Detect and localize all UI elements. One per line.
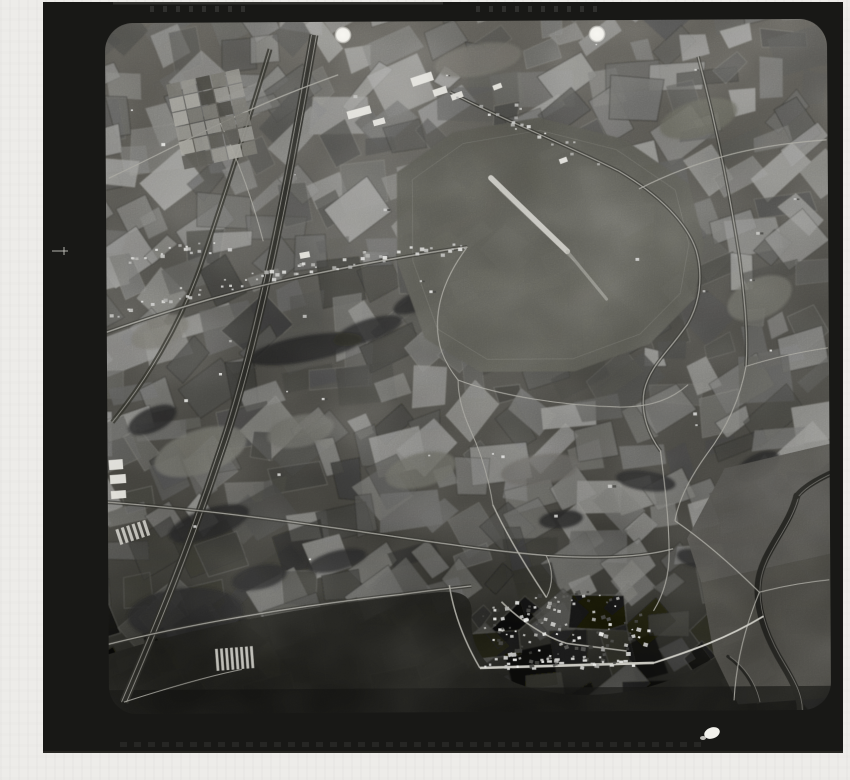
film-edge-mark xyxy=(528,6,532,12)
film-edge-tick xyxy=(316,742,323,747)
film-edge-tick xyxy=(694,742,701,747)
frame-bottom-edge xyxy=(43,751,843,753)
film-edge-tick xyxy=(358,742,365,747)
film-edge-tick xyxy=(428,742,435,747)
photo-clip-group xyxy=(52,0,850,731)
film-edge-tick xyxy=(288,742,295,747)
film-edge-tick xyxy=(274,742,281,747)
film-edge-mark xyxy=(515,6,519,12)
frame-top-edge-highlight xyxy=(113,2,443,5)
film-edge-mark xyxy=(241,6,245,12)
film-edge-mark xyxy=(502,6,506,12)
film-edge-tick xyxy=(218,742,225,747)
film-edge-tick xyxy=(666,742,673,747)
film-edge-tick xyxy=(568,742,575,747)
film-edge-tick xyxy=(512,742,519,747)
film-edge-tick xyxy=(596,742,603,747)
film-edge-tick xyxy=(120,742,127,747)
film-edge-tick xyxy=(526,742,533,747)
film-edge-tick xyxy=(456,742,463,747)
film-edge-mark xyxy=(215,6,219,12)
film-edge-tick xyxy=(638,742,645,747)
film-edge-tick xyxy=(232,742,239,747)
scan-backing-sheet xyxy=(0,0,850,780)
film-edge-mark xyxy=(541,6,545,12)
film-edge-tick xyxy=(680,742,687,747)
film-edge-mark xyxy=(228,6,232,12)
film-edge-mark xyxy=(202,6,206,12)
film-edge-tick xyxy=(302,742,309,747)
film-edge-tick xyxy=(470,742,477,747)
film-edge-mark xyxy=(554,6,558,12)
film-edge-tick xyxy=(442,742,449,747)
film-edge-tick xyxy=(148,742,155,747)
film-edge-tick xyxy=(540,742,547,747)
film-edge-mark xyxy=(476,6,480,12)
film-edge-tick xyxy=(582,742,589,747)
film-edge-mark xyxy=(163,6,167,12)
film-edge-mark xyxy=(593,6,597,12)
film-edge-tick xyxy=(610,742,617,747)
film-edge-mark xyxy=(189,6,193,12)
film-edge-mark xyxy=(567,6,571,12)
film-edge-tick xyxy=(484,742,491,747)
film-edge-tick xyxy=(414,742,421,747)
film-edge-tick xyxy=(176,742,183,747)
aerial-photograph xyxy=(0,0,850,780)
film-grain xyxy=(105,19,831,714)
photo-content xyxy=(52,0,850,731)
film-edge-mark xyxy=(150,6,154,12)
film-edge-tick xyxy=(162,742,169,747)
film-edge-mark xyxy=(580,6,584,12)
fiducial-dot xyxy=(589,26,606,43)
film-edge-tick xyxy=(204,742,211,747)
film-edge-tick xyxy=(260,742,267,747)
fiducial-dot xyxy=(335,27,352,44)
film-edge-mark xyxy=(176,6,180,12)
film-edge-mark xyxy=(489,6,493,12)
film-edge-tick xyxy=(386,742,393,747)
film-edge-tick xyxy=(400,742,407,747)
emulsion-flaw-blob xyxy=(700,736,706,740)
film-edge-tick xyxy=(134,742,141,747)
film-edge-tick xyxy=(624,742,631,747)
film-edge-tick xyxy=(344,742,351,747)
film-edge-tick xyxy=(330,742,337,747)
film-edge-tick xyxy=(372,742,379,747)
film-edge-tick xyxy=(554,742,561,747)
film-edge-tick xyxy=(498,742,505,747)
film-edge-tick xyxy=(652,742,659,747)
film-edge-tick xyxy=(190,742,197,747)
film-edge-tick xyxy=(246,742,253,747)
